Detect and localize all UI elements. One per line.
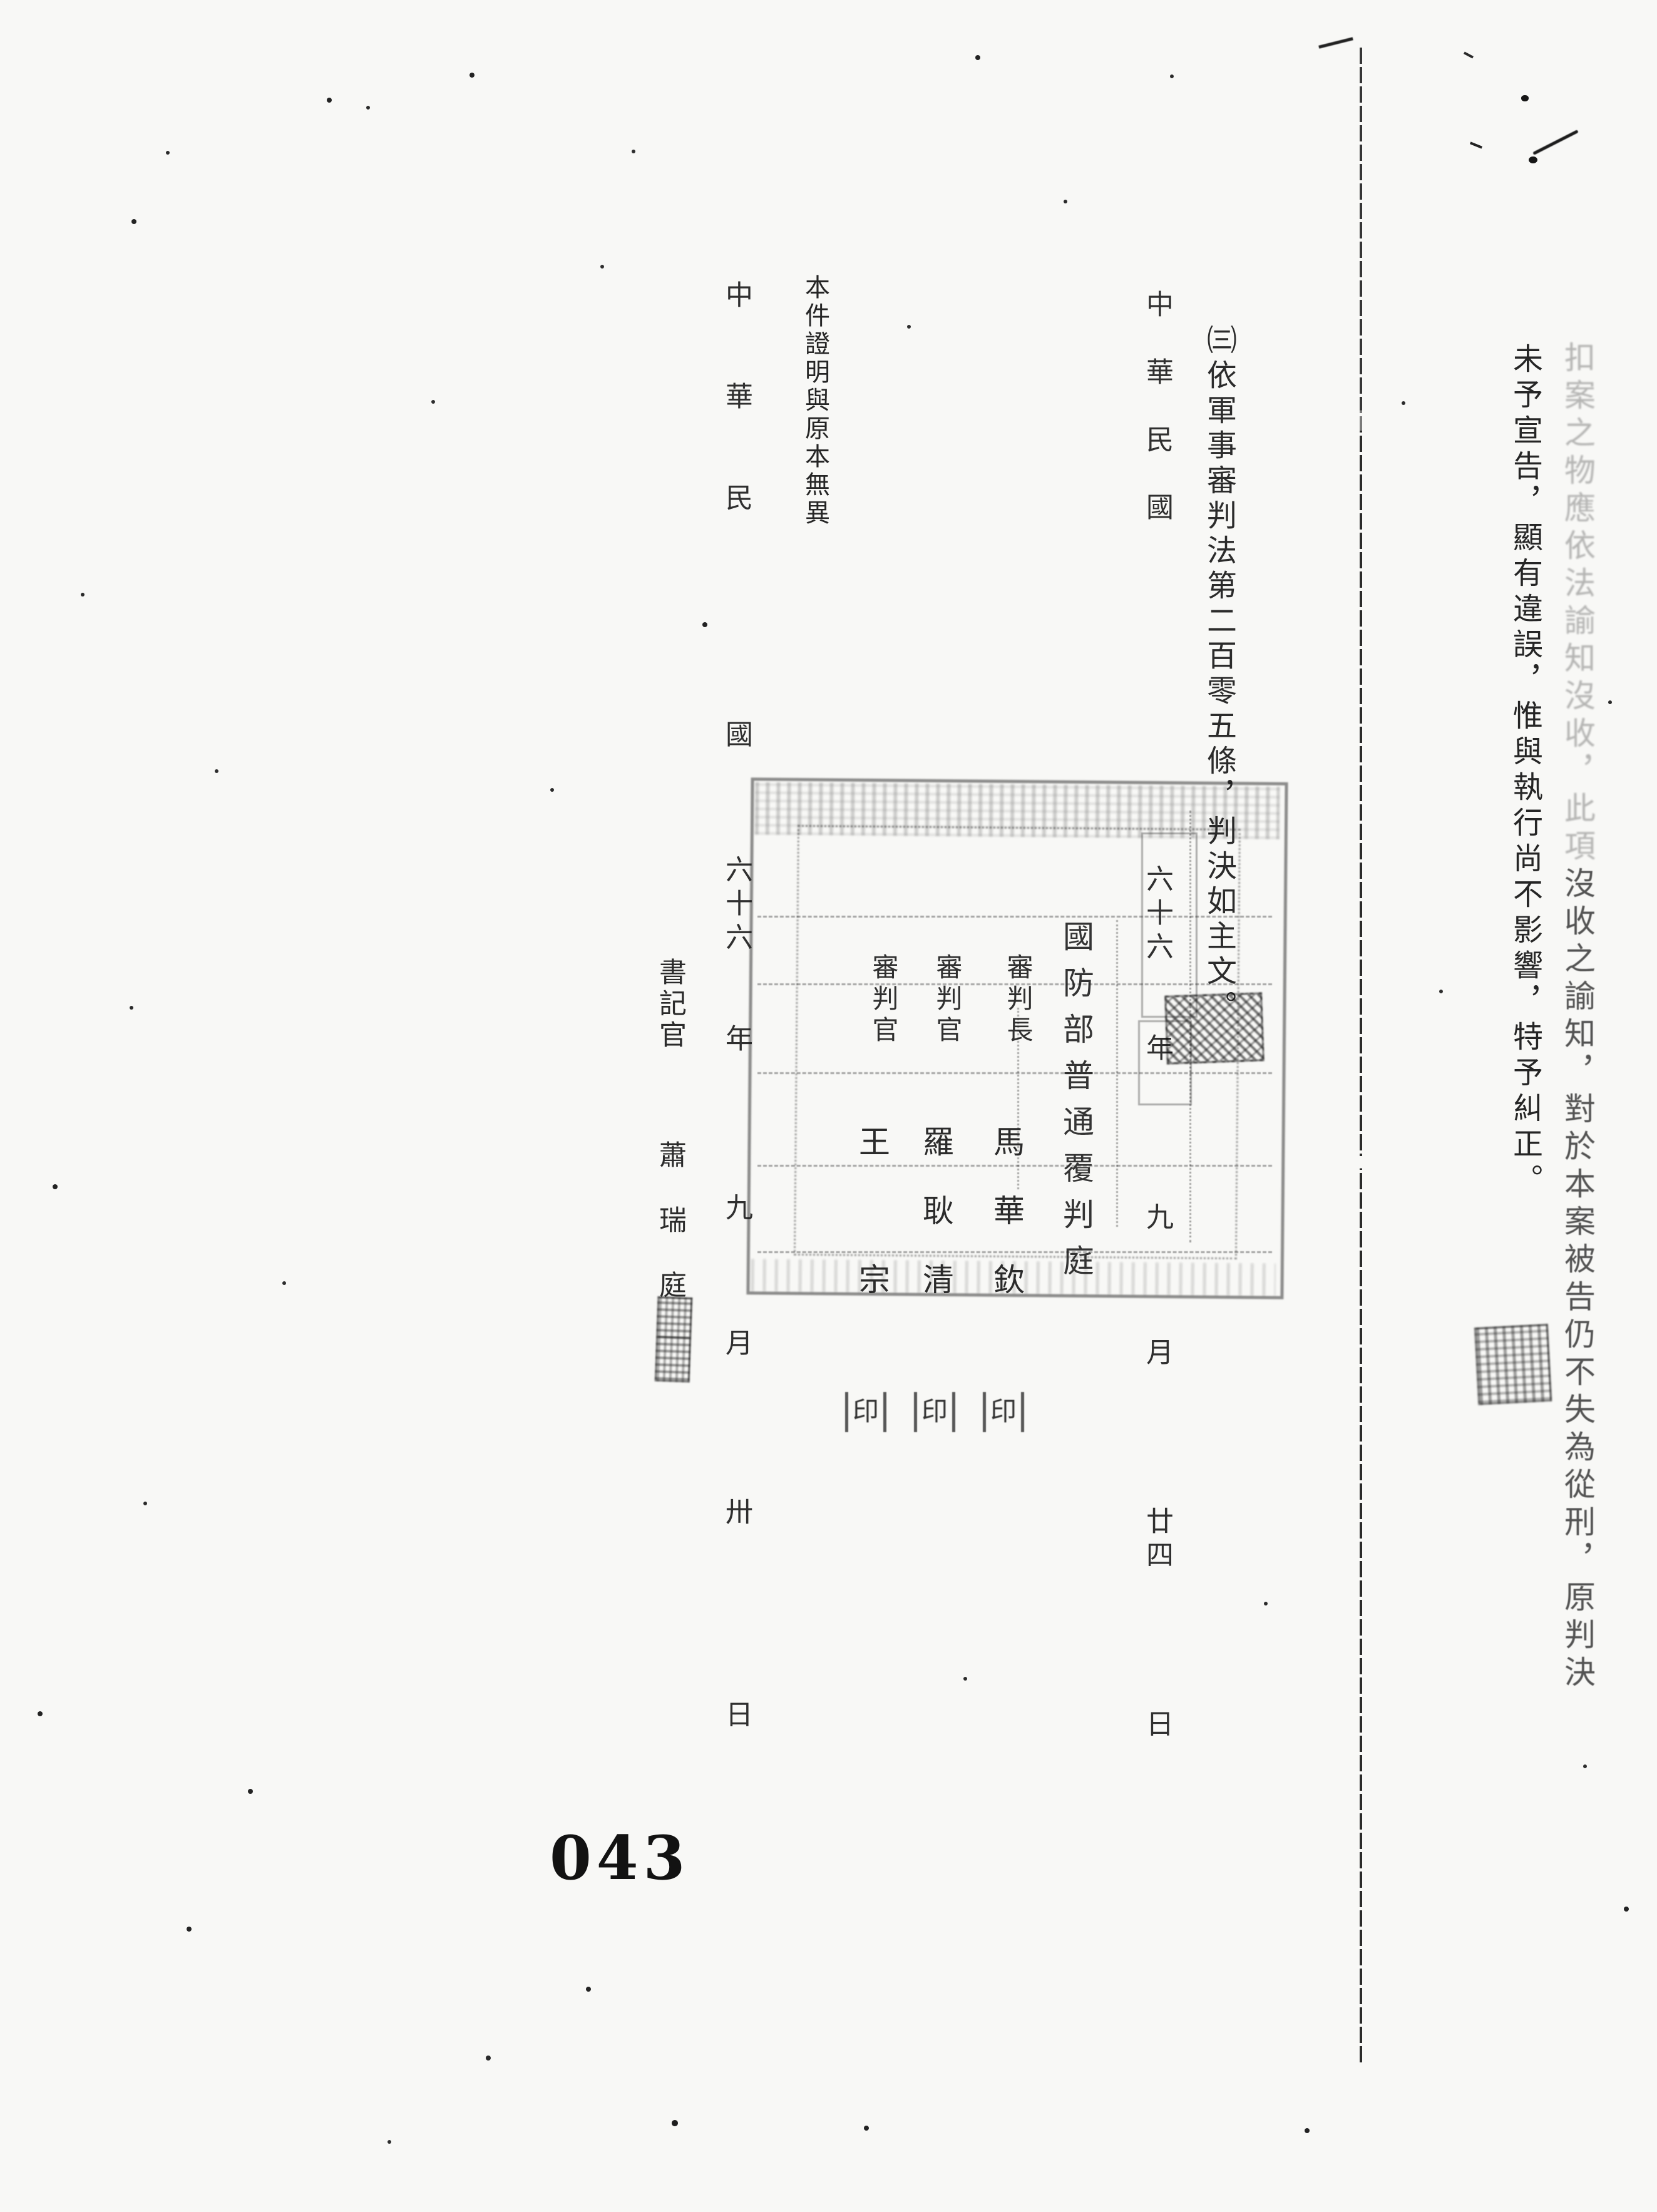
stamp-inner-box — [1141, 832, 1198, 1018]
judge-name-2: 羅耿清 — [920, 1125, 952, 1332]
judge-role-3: 審判官 — [870, 953, 896, 1047]
stamp-noise-top — [755, 782, 1280, 839]
scan-scratch — [1318, 37, 1353, 48]
clerk-signature-block: 書記官蕭瑞庭 — [656, 958, 684, 1336]
yin-seal-mark-icon: 印 — [845, 1392, 886, 1432]
scan-dot — [1529, 156, 1537, 163]
scan-tick — [1470, 141, 1482, 148]
scan-dot — [1521, 95, 1529, 101]
clerk-title: 書記官 — [655, 958, 685, 1052]
stamp-grid-line — [1116, 920, 1118, 1227]
stamp-scribble-icon — [1164, 992, 1265, 1064]
certification-statement: 本件證明與原本無異 — [803, 274, 828, 528]
ruling-line-faded-part: 扣案之物應依法諭知沒收，此項 — [1560, 341, 1595, 867]
page-number: 043 — [550, 1823, 690, 1893]
clerk-seal-icon — [655, 1296, 693, 1383]
yin-seal-mark-icon: 印 — [983, 1392, 1024, 1432]
judge-name-3: 王 宗 — [856, 1125, 888, 1332]
court-name: 國防部普通覆判庭 — [1060, 920, 1092, 1291]
correction-line: 未予宣告，顯有違誤，惟與執行尚不影響，特予糾正。 — [1509, 343, 1539, 1199]
certification-date-line: 中 華 民 國 六十六 年 九 月 卅 日 — [722, 280, 750, 1734]
scanned-judgment-page: 扣案之物應依法諭知沒收，此項沒收之諭知，對於本案被告仍不失為從刑，原判決 未予宣… — [0, 0, 1657, 2212]
ruling-confiscation-line: 扣案之物應依法諭知沒收，此項沒收之諭知，對於本案被告仍不失為從刑，原判決 — [1562, 341, 1593, 1693]
page-fold-line — [1360, 48, 1362, 2063]
ruling-line-legible-part: 沒收之諭知，對於本案被告仍不失為從刑，原判決 — [1560, 867, 1595, 1693]
judge-name-1: 馬華欽 — [991, 1125, 1022, 1332]
yin-seal-mark-icon: 印 — [914, 1392, 955, 1432]
smudged-seal-icon — [1474, 1324, 1552, 1405]
scan-tick — [1464, 51, 1474, 58]
stamp-grid-line — [757, 1072, 1272, 1074]
judge-role-2: 審判官 — [933, 953, 960, 1047]
judge-role-presiding: 審判長 — [1004, 953, 1030, 1047]
scan-scratch — [1532, 130, 1579, 155]
